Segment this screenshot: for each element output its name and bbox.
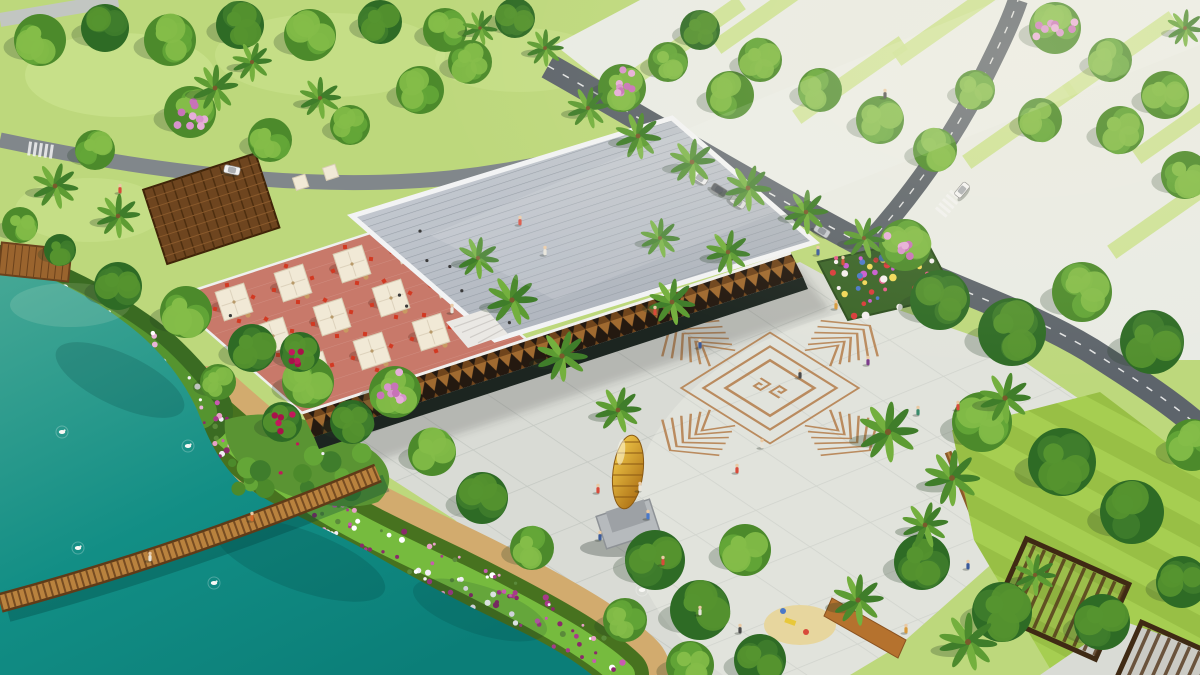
scene-aerial-render xyxy=(0,0,1200,675)
aerial-render-stage xyxy=(0,0,1200,675)
sunlight-overlay xyxy=(0,0,1200,675)
